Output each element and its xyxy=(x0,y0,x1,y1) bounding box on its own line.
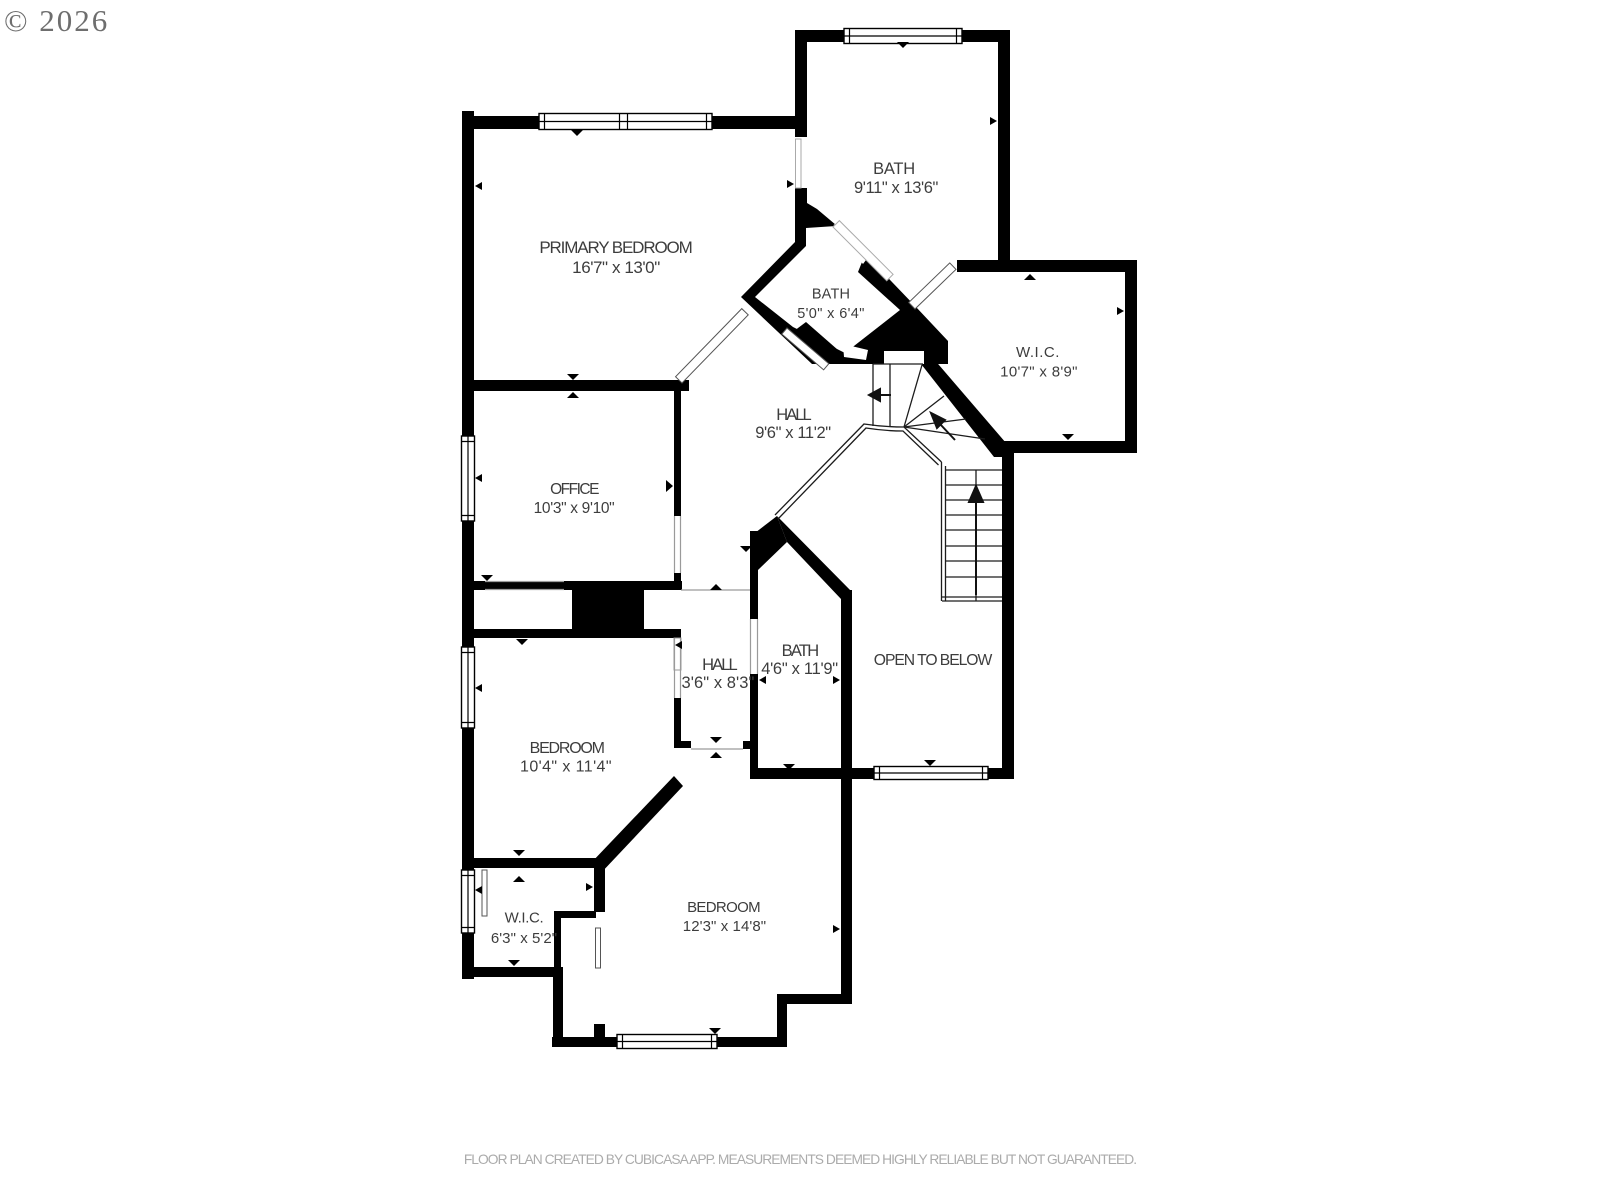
svg-text:6'3" x 5'2": 6'3" x 5'2" xyxy=(491,930,557,947)
svg-text:BEDROOM: BEDROOM xyxy=(687,899,760,916)
svg-text:12'3" x 14'8": 12'3" x 14'8" xyxy=(683,918,766,935)
svg-text:BATH: BATH xyxy=(782,642,819,660)
svg-text:PRIMARY BEDROOM: PRIMARY BEDROOM xyxy=(539,238,691,257)
svg-text:10'7" x 8'9": 10'7" x 8'9" xyxy=(1000,364,1078,381)
svg-text:9'6" x 11'2": 9'6" x 11'2" xyxy=(755,424,831,442)
svg-text:BATH: BATH xyxy=(873,160,915,178)
svg-text:HALL: HALL xyxy=(702,656,737,674)
svg-text:OPEN TO BELOW: OPEN TO BELOW xyxy=(874,652,993,669)
svg-text:W.I.C.: W.I.C. xyxy=(505,910,544,927)
svg-text:4'6" x 11'9": 4'6" x 11'9" xyxy=(761,660,838,678)
svg-text:10'3" x 9'10": 10'3" x 9'10" xyxy=(534,500,615,517)
svg-text:OFFICE: OFFICE xyxy=(550,481,599,498)
svg-text:BATH: BATH xyxy=(812,287,850,303)
svg-text:10'4" x 11'4": 10'4" x 11'4" xyxy=(520,759,612,776)
svg-text:BEDROOM: BEDROOM xyxy=(530,740,605,757)
svg-text:9'11" x 13'6": 9'11" x 13'6" xyxy=(854,179,938,197)
svg-text:3'6" x 8'3": 3'6" x 8'3" xyxy=(682,674,755,692)
svg-text:W.I.C.: W.I.C. xyxy=(1016,344,1060,361)
svg-text:5'0" x 6'4": 5'0" x 6'4" xyxy=(797,306,865,322)
svg-text:FLOOR PLAN CREATED BY CUBICASA: FLOOR PLAN CREATED BY CUBICASA APP. MEAS… xyxy=(464,1152,1136,1167)
svg-text:HALL: HALL xyxy=(776,406,811,424)
svg-text:16'7" x 13'0": 16'7" x 13'0" xyxy=(572,258,660,277)
svg-text:© 2026: © 2026 xyxy=(4,3,109,38)
